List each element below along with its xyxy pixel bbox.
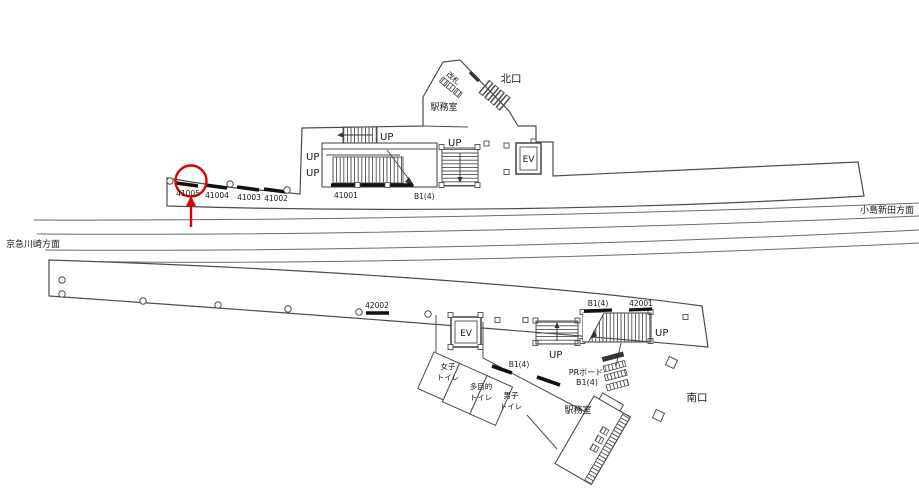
toilet-multi-label-2: トイレ (470, 393, 493, 402)
toilet-rooms (417, 352, 513, 425)
pr-board-label-line2: B1(4) (576, 378, 598, 387)
toilet-women-label-1: 女子 (441, 361, 456, 371)
upper-ev-label: EV (523, 155, 536, 165)
board-b1-left-mark (584, 310, 612, 311)
south-ticket-gates (599, 352, 632, 391)
toilet-women-label-2: トイレ (437, 373, 460, 382)
pr-board-mark-2 (537, 377, 560, 385)
upper-main-stairs (322, 143, 437, 188)
north-exit-label: 北口 (501, 73, 522, 85)
lower-stairs (583, 313, 651, 342)
south-rotated-pillars (653, 357, 678, 422)
board-41004-label: 41004 (205, 191, 229, 200)
board-41003-label: 41003 (237, 193, 261, 202)
board-41002-label: 41002 (264, 194, 288, 203)
up-label-top-escalator: UP (380, 132, 393, 143)
up-label-left-2: UP (306, 168, 319, 179)
board-41001-label: 41001 (334, 191, 358, 200)
board-42001-label: 42001 (629, 299, 653, 308)
upper-office-label: 駅務室 (430, 101, 457, 113)
toilet-multi-label-1: 多目的 (470, 381, 493, 391)
track-line-2 (37, 216, 919, 234)
direction-west-label: 京急川崎方面 (6, 238, 60, 250)
south-office-building (555, 390, 634, 485)
up-label-lower-stairs: UP (655, 328, 668, 339)
direction-east-label: 小島新田方面 (860, 204, 914, 216)
upper-b1-label: B1(4) (414, 192, 435, 201)
south-exit-label: 南口 (687, 391, 708, 404)
board-42001-mark (629, 309, 652, 310)
lower-b1-small-label: B1(4) (509, 360, 530, 369)
toilet-men-label-2: トイレ (500, 402, 523, 411)
up-label-mid-stairs: UP (448, 138, 461, 149)
lower-office-label: 駅務室 (564, 404, 591, 416)
track-line-3 (45, 230, 919, 250)
board-42002-label: 42002 (365, 301, 389, 310)
up-label-lower-escalator: UP (549, 350, 562, 361)
up-label-left-1: UP (306, 152, 319, 163)
lower-b1-stairs-label: B1(4) (588, 299, 609, 308)
station-platform-map: 改札 (0, 0, 919, 491)
track-lines (34, 203, 919, 262)
board-41005-label: 41005 (176, 189, 200, 198)
pr-board-label-line1: PRボード (569, 368, 603, 377)
lower-ev-label: EV (460, 329, 473, 339)
toilet-men-label-1: 男子 (504, 391, 519, 400)
